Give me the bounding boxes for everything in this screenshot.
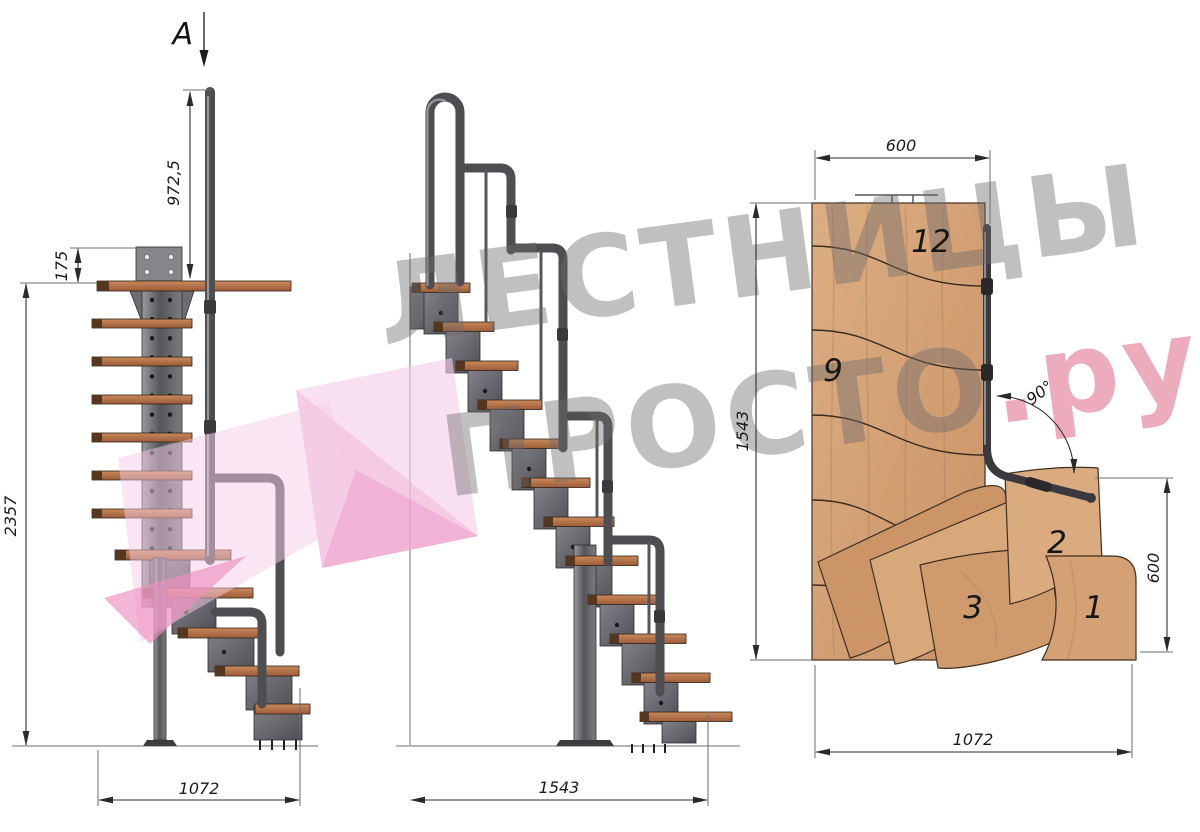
step-number-1: 1 bbox=[1084, 590, 1104, 626]
dim-label-plan-bottom: 1072 bbox=[953, 730, 994, 749]
dim-label-front-length: 1543 bbox=[539, 778, 580, 797]
dim-label-side-length: 1072 bbox=[179, 779, 220, 798]
dim-label-plan-left: 1543 bbox=[733, 411, 752, 452]
stair-technical-drawing: ЛЕСТНИЦЫ ПРОСТО.ру A 972,5 175 2357 1072… bbox=[0, 0, 1200, 832]
rail-connector bbox=[506, 205, 517, 218]
top-platform bbox=[97, 281, 291, 291]
section-label: A bbox=[170, 17, 193, 52]
step-number-12: 12 bbox=[911, 224, 950, 260]
wall-bracket-plate bbox=[136, 247, 182, 283]
dim-label-plan-top: 600 bbox=[886, 136, 917, 155]
watermark-line2-accent: .ру bbox=[983, 294, 1200, 451]
dim-label-plan-right: 600 bbox=[1144, 553, 1163, 584]
rail-connector bbox=[204, 300, 216, 314]
anchor-bolts bbox=[632, 744, 665, 753]
handrail-side bbox=[204, 92, 280, 704]
anchor-bolts bbox=[260, 740, 296, 750]
step-number-9: 9 bbox=[823, 353, 843, 389]
stair-tread bbox=[92, 319, 192, 328]
dim-label-bracket-offset: 175 bbox=[52, 251, 71, 282]
step-number-3: 3 bbox=[963, 590, 983, 626]
column-foot bbox=[556, 740, 614, 746]
step-number-2: 2 bbox=[1047, 525, 1067, 561]
dim-label-handrail-height: 972,5 bbox=[164, 160, 183, 206]
support-column bbox=[574, 545, 596, 741]
drawing-sheet: ЛЕСТНИЦЫ ПРОСТО.ру A 972,5 175 2357 1072… bbox=[0, 0, 1200, 832]
bolt-hole bbox=[144, 254, 149, 259]
dim-label-total-height: 2357 bbox=[1, 495, 20, 537]
post-foot bbox=[143, 740, 177, 746]
